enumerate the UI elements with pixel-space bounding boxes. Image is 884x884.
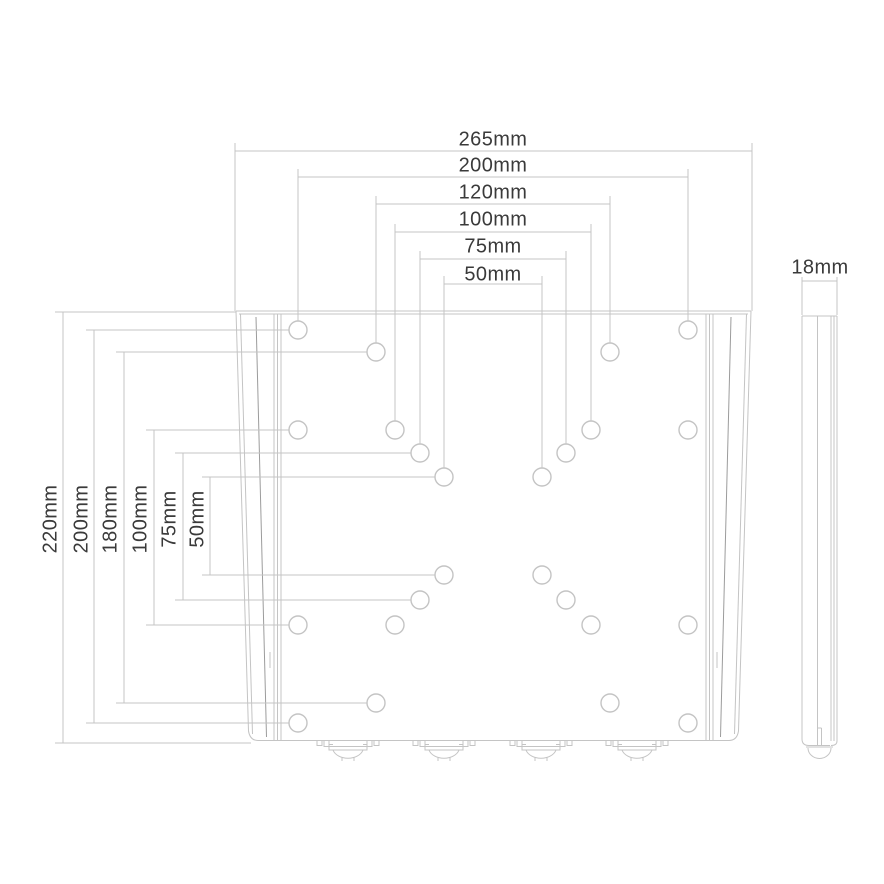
left-dimension-label-180: 180mm (100, 485, 123, 554)
drawing-linework (0, 0, 884, 884)
left-dimension-label-50: 50mm (187, 490, 210, 547)
front-view-plate-outline (236, 311, 751, 741)
left-dimension-label-75: 75mm (159, 490, 182, 547)
top-dimension-label-120: 120mm (459, 182, 528, 205)
side-view-profile (802, 277, 837, 759)
bottom-screw-tabs (317, 741, 668, 761)
top-dimension-label-265: 265mm (459, 129, 528, 152)
left-dimension-label-100: 100mm (130, 485, 153, 554)
mounting-holes (289, 321, 697, 732)
side-thickness-label-18: 18mm (791, 257, 848, 280)
top-dimension-label-200: 200mm (459, 155, 528, 178)
left-dimension-label-200: 200mm (71, 485, 94, 554)
top-dimension-label-100: 100mm (459, 209, 528, 232)
top-dimension-label-50: 50mm (464, 264, 521, 287)
left-dimension-label-220: 220mm (40, 485, 63, 554)
technical-drawing-canvas: 265mm 200mm 120mm 100mm 75mm 50mm 220mm … (0, 0, 884, 884)
top-dimension-label-75: 75mm (464, 236, 521, 259)
